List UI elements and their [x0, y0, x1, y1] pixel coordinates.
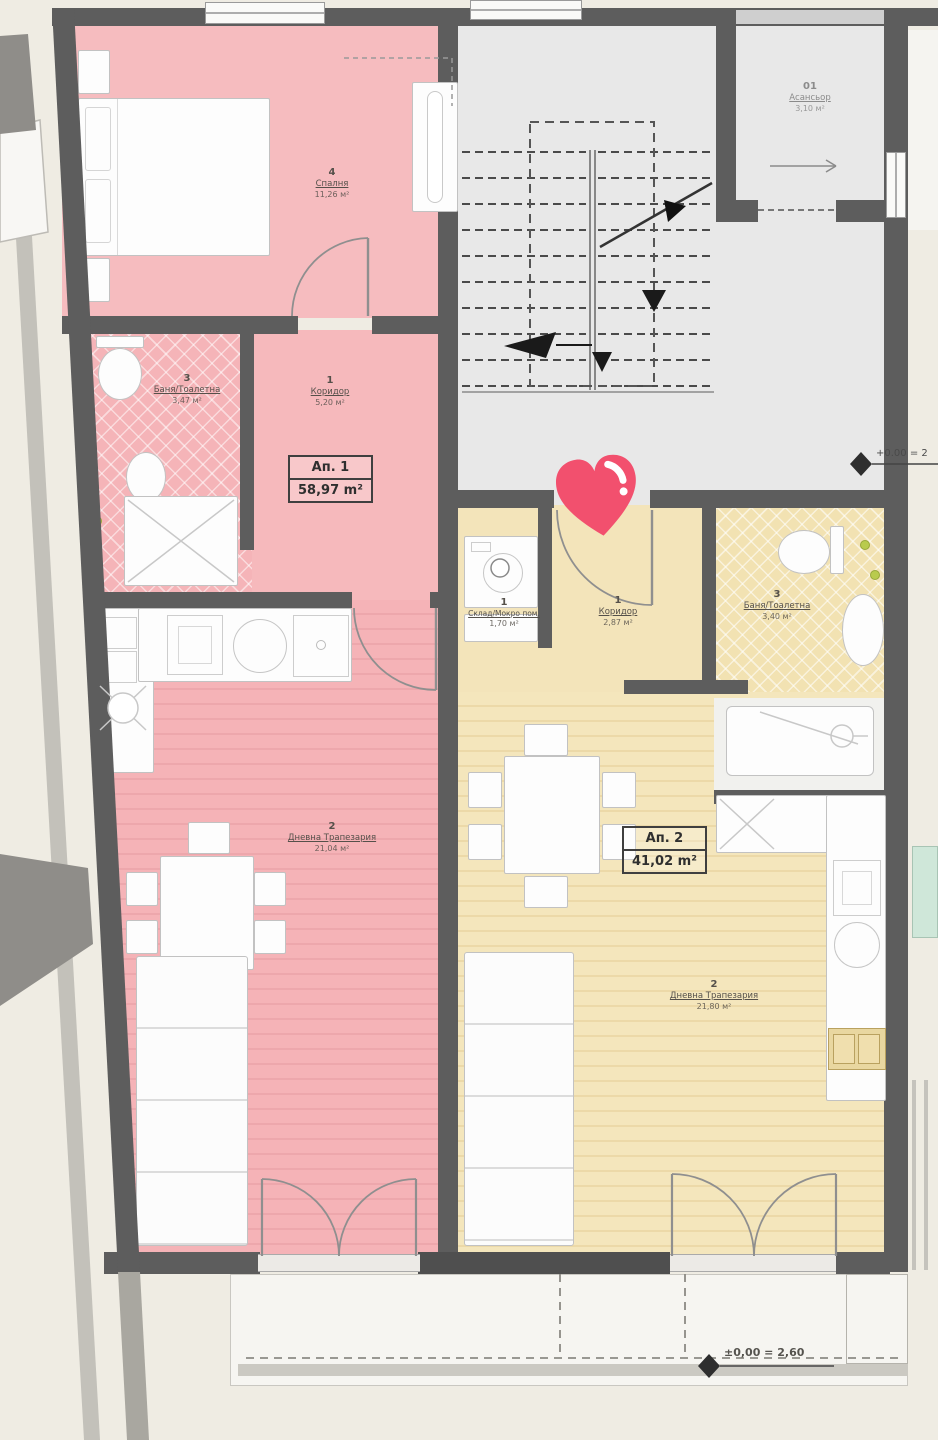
chair — [602, 772, 636, 808]
plant-dot — [860, 540, 870, 550]
sink — [126, 452, 166, 502]
neighbor-wall — [0, 854, 93, 1006]
chair — [468, 772, 502, 808]
toilet-tank — [830, 526, 844, 574]
stove — [233, 619, 287, 673]
wall — [62, 316, 298, 334]
wall — [836, 200, 884, 222]
shower — [124, 496, 238, 586]
elevation-text-right: +0.00 = 2 — [876, 448, 928, 459]
terrace-right-box — [846, 1274, 908, 1364]
outside-white — [908, 30, 938, 230]
wardrobe — [412, 82, 458, 212]
window — [886, 152, 906, 218]
room-label-corridor-apt2: 1 Коридор 2,87 м² — [558, 594, 678, 628]
dining-table — [160, 856, 254, 970]
wall — [836, 1252, 890, 1274]
plant-dot — [92, 516, 102, 526]
wall — [736, 200, 758, 222]
room-label-storage-apt2: 1 Склад/Мокро пом. 1,70 м² — [442, 596, 566, 629]
balcony-rail — [924, 1080, 928, 1270]
kitchen-sink — [293, 615, 349, 677]
apartment1-badge: Ап. 1 58,97 m² — [288, 455, 373, 503]
room-label-living-apt2: 2 Дневна Трапезария 21,80 м² — [644, 978, 784, 1012]
wall — [418, 1252, 670, 1274]
room-label-bath-apt1: 3 Баня/Тоалетна 3,47 м² — [127, 372, 247, 406]
wall — [702, 508, 716, 692]
toilet-tank — [96, 336, 144, 348]
elevator-back-wall — [736, 10, 884, 24]
wall-slanted-left-lower — [118, 1272, 149, 1440]
bathtub — [726, 706, 874, 776]
garden-strip — [912, 846, 938, 938]
kitchen-corner-sink — [716, 795, 834, 853]
wall — [438, 26, 458, 1272]
pillow — [85, 179, 111, 243]
wall-elevator-left — [716, 26, 736, 222]
sofa — [464, 952, 574, 1246]
bed — [78, 98, 270, 256]
chair — [126, 872, 158, 906]
door-sill — [258, 1254, 420, 1272]
wall — [98, 592, 352, 608]
dishwasher — [167, 615, 223, 675]
wall — [702, 680, 748, 694]
chair — [524, 724, 568, 756]
window — [470, 0, 582, 20]
wall — [650, 490, 890, 508]
apartment2-badge: Ап. 2 41,02 m² — [622, 826, 707, 874]
small-table — [828, 1028, 886, 1070]
neighbor-structure — [0, 120, 48, 242]
sofa — [136, 956, 248, 1246]
elevation-text-bottom: ±0,00 = 2,60 — [724, 1346, 804, 1359]
terrace-edge — [238, 1364, 908, 1376]
sink — [842, 594, 884, 666]
nightstand — [78, 258, 110, 302]
appliance — [101, 651, 137, 683]
toilet — [778, 530, 830, 574]
room-label-living-apt1: 2 Дневна Трапезария 21,04 м² — [262, 820, 402, 854]
door-sill — [670, 1254, 836, 1272]
wall — [458, 490, 554, 508]
floor-plan: 4 Спалня 11,26 м² 3 Баня/Тоалетна 3,47 м… — [0, 0, 938, 1440]
chair — [254, 920, 286, 954]
dining-table — [504, 756, 600, 874]
room-label-bath-apt2: 3 Баня/Тоалетна 3,40 м² — [717, 588, 837, 622]
stove — [834, 922, 880, 968]
appliance — [101, 617, 137, 649]
chair — [468, 824, 502, 860]
oven — [833, 860, 881, 916]
balcony-rail — [912, 1080, 916, 1270]
nightstand — [78, 50, 110, 94]
room-label-corridor-apt1: 1 Коридор 5,20 м² — [270, 374, 390, 408]
chair — [126, 920, 158, 954]
chair — [188, 822, 230, 854]
plant-dot — [92, 548, 102, 558]
wall — [240, 334, 254, 550]
chair — [254, 872, 286, 906]
chair — [524, 876, 568, 908]
wall — [624, 680, 702, 694]
room-label-bedroom-apt1: 4 Спалня 11,26 м² — [272, 166, 392, 200]
kitchen-counter — [138, 608, 352, 682]
plant-dot — [870, 570, 880, 580]
wall — [104, 1252, 260, 1274]
window — [205, 2, 325, 24]
wall — [372, 316, 440, 334]
elevator-label: 01 Асансьор 3,10 м² — [750, 80, 870, 114]
blanket-line — [117, 99, 118, 255]
hanging-rail — [427, 91, 443, 203]
wall — [430, 592, 440, 608]
pillow — [85, 107, 111, 171]
neighbor-wall — [0, 34, 36, 134]
